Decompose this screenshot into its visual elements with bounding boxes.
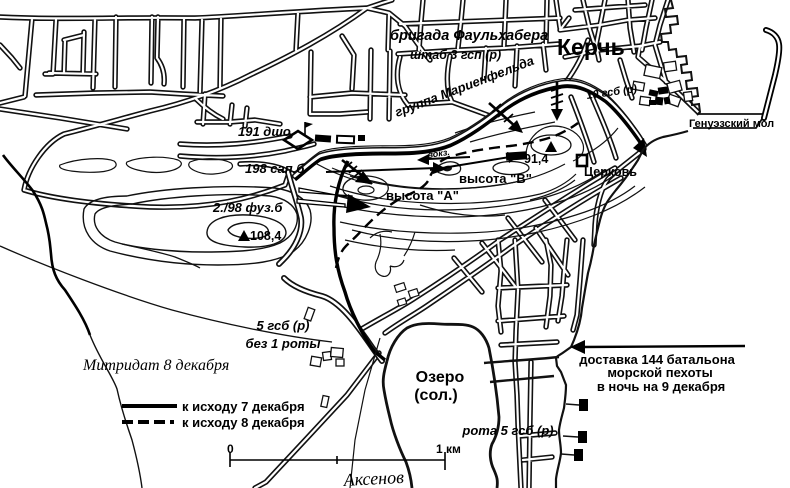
- svg-text:Церковь: Церковь: [584, 165, 637, 179]
- svg-text:Митридат 8 декабря: Митридат 8 декабря: [82, 357, 229, 374]
- svg-text:штаб 3 гсп (р): штаб 3 гсп (р): [410, 48, 501, 62]
- svg-text:5 гсб (р): 5 гсб (р): [257, 318, 310, 333]
- svg-text:198 сап.б: 198 сап.б: [245, 161, 305, 176]
- svg-text:Аксенов: Аксенов: [342, 467, 404, 488]
- svg-text:191 дшо: 191 дшо: [238, 124, 291, 139]
- svg-text:к исходу 7 декабря: к исходу 7 декабря: [182, 399, 305, 414]
- svg-text:(сол.): (сол.): [414, 387, 458, 404]
- svg-text:Генуэзский мол: Генуэзский мол: [689, 118, 774, 130]
- svg-text:рота 5 гсб (р): рота 5 гсб (р): [461, 423, 553, 438]
- svg-text:морской пехоты: морской пехоты: [607, 365, 712, 380]
- svg-text:к исходу 8 декабря: к исходу 8 декабря: [182, 415, 305, 430]
- svg-text:высота "В": высота "В": [459, 171, 532, 186]
- svg-text:1 км: 1 км: [436, 442, 461, 456]
- svg-text:0: 0: [227, 442, 234, 456]
- svg-text:Озеро: Озеро: [416, 369, 465, 386]
- svg-text:высота "А": высота "А": [386, 188, 459, 203]
- svg-text:без 1 роты: без 1 роты: [246, 336, 321, 351]
- svg-text:108,4: 108,4: [250, 229, 281, 243]
- svg-text:91,4: 91,4: [524, 152, 548, 166]
- svg-text:Керчь: Керчь: [557, 34, 625, 60]
- svg-text:2./98 фуз.б: 2./98 фуз.б: [212, 200, 283, 215]
- svg-text:в ночь на 9 декабря: в ночь на 9 декабря: [597, 379, 725, 394]
- svg-text:бригада Фаульхабера: бригада Фаульхабера: [390, 28, 548, 44]
